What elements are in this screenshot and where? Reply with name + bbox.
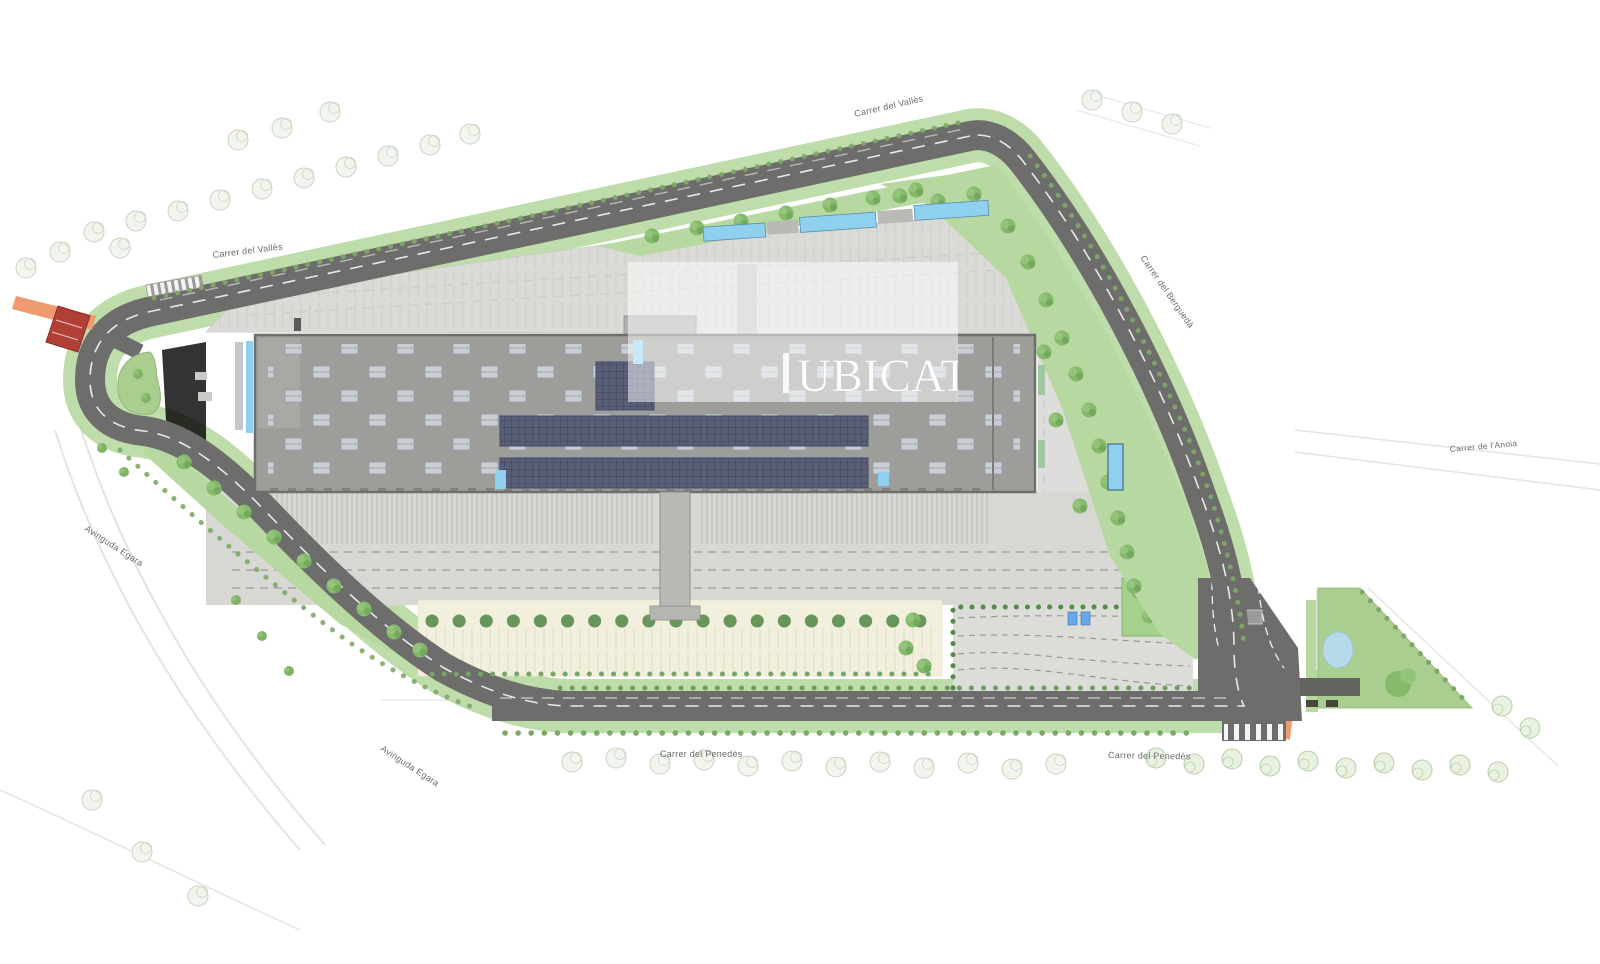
- street-label-penedes-east: Carrer del Penedès: [1108, 750, 1191, 761]
- street-label-penedes-west: Carrer del Penedès: [660, 749, 743, 759]
- context-trees-southwest: [82, 790, 208, 906]
- dock-hatch-west: [262, 492, 654, 544]
- watermark-text: UBICAT: [797, 350, 970, 402]
- street-label-valles-top: Carrer del Vallès: [853, 93, 924, 119]
- site-plan-canvas: UBICAT Carrer del Vallès Carrer del Vall…: [0, 0, 1600, 964]
- street-label-valles-left: Carrer del Vallès: [212, 241, 284, 260]
- hairpin-island: [118, 352, 161, 414]
- street-label-egara-north: Avinguda Egara: [83, 523, 145, 568]
- context-trees-northeast: [1082, 90, 1182, 134]
- pond: [1323, 632, 1353, 668]
- crosswalk: [1224, 724, 1284, 740]
- park-driveway: [1292, 678, 1360, 696]
- street-label-egara-south: Avinguda Egara: [379, 743, 441, 788]
- context-trees-south: [562, 748, 1066, 779]
- docked-truck: [1108, 444, 1123, 490]
- watermark: UBICAT: [628, 262, 970, 402]
- dock-hatch-east: [700, 492, 988, 544]
- parked-vehicle: [1068, 612, 1077, 625]
- parked-vehicle: [1081, 612, 1090, 625]
- site-plan: UBICAT Carrer del Vallès Carrer del Vall…: [0, 0, 1600, 964]
- egara-street-trees: [231, 595, 294, 676]
